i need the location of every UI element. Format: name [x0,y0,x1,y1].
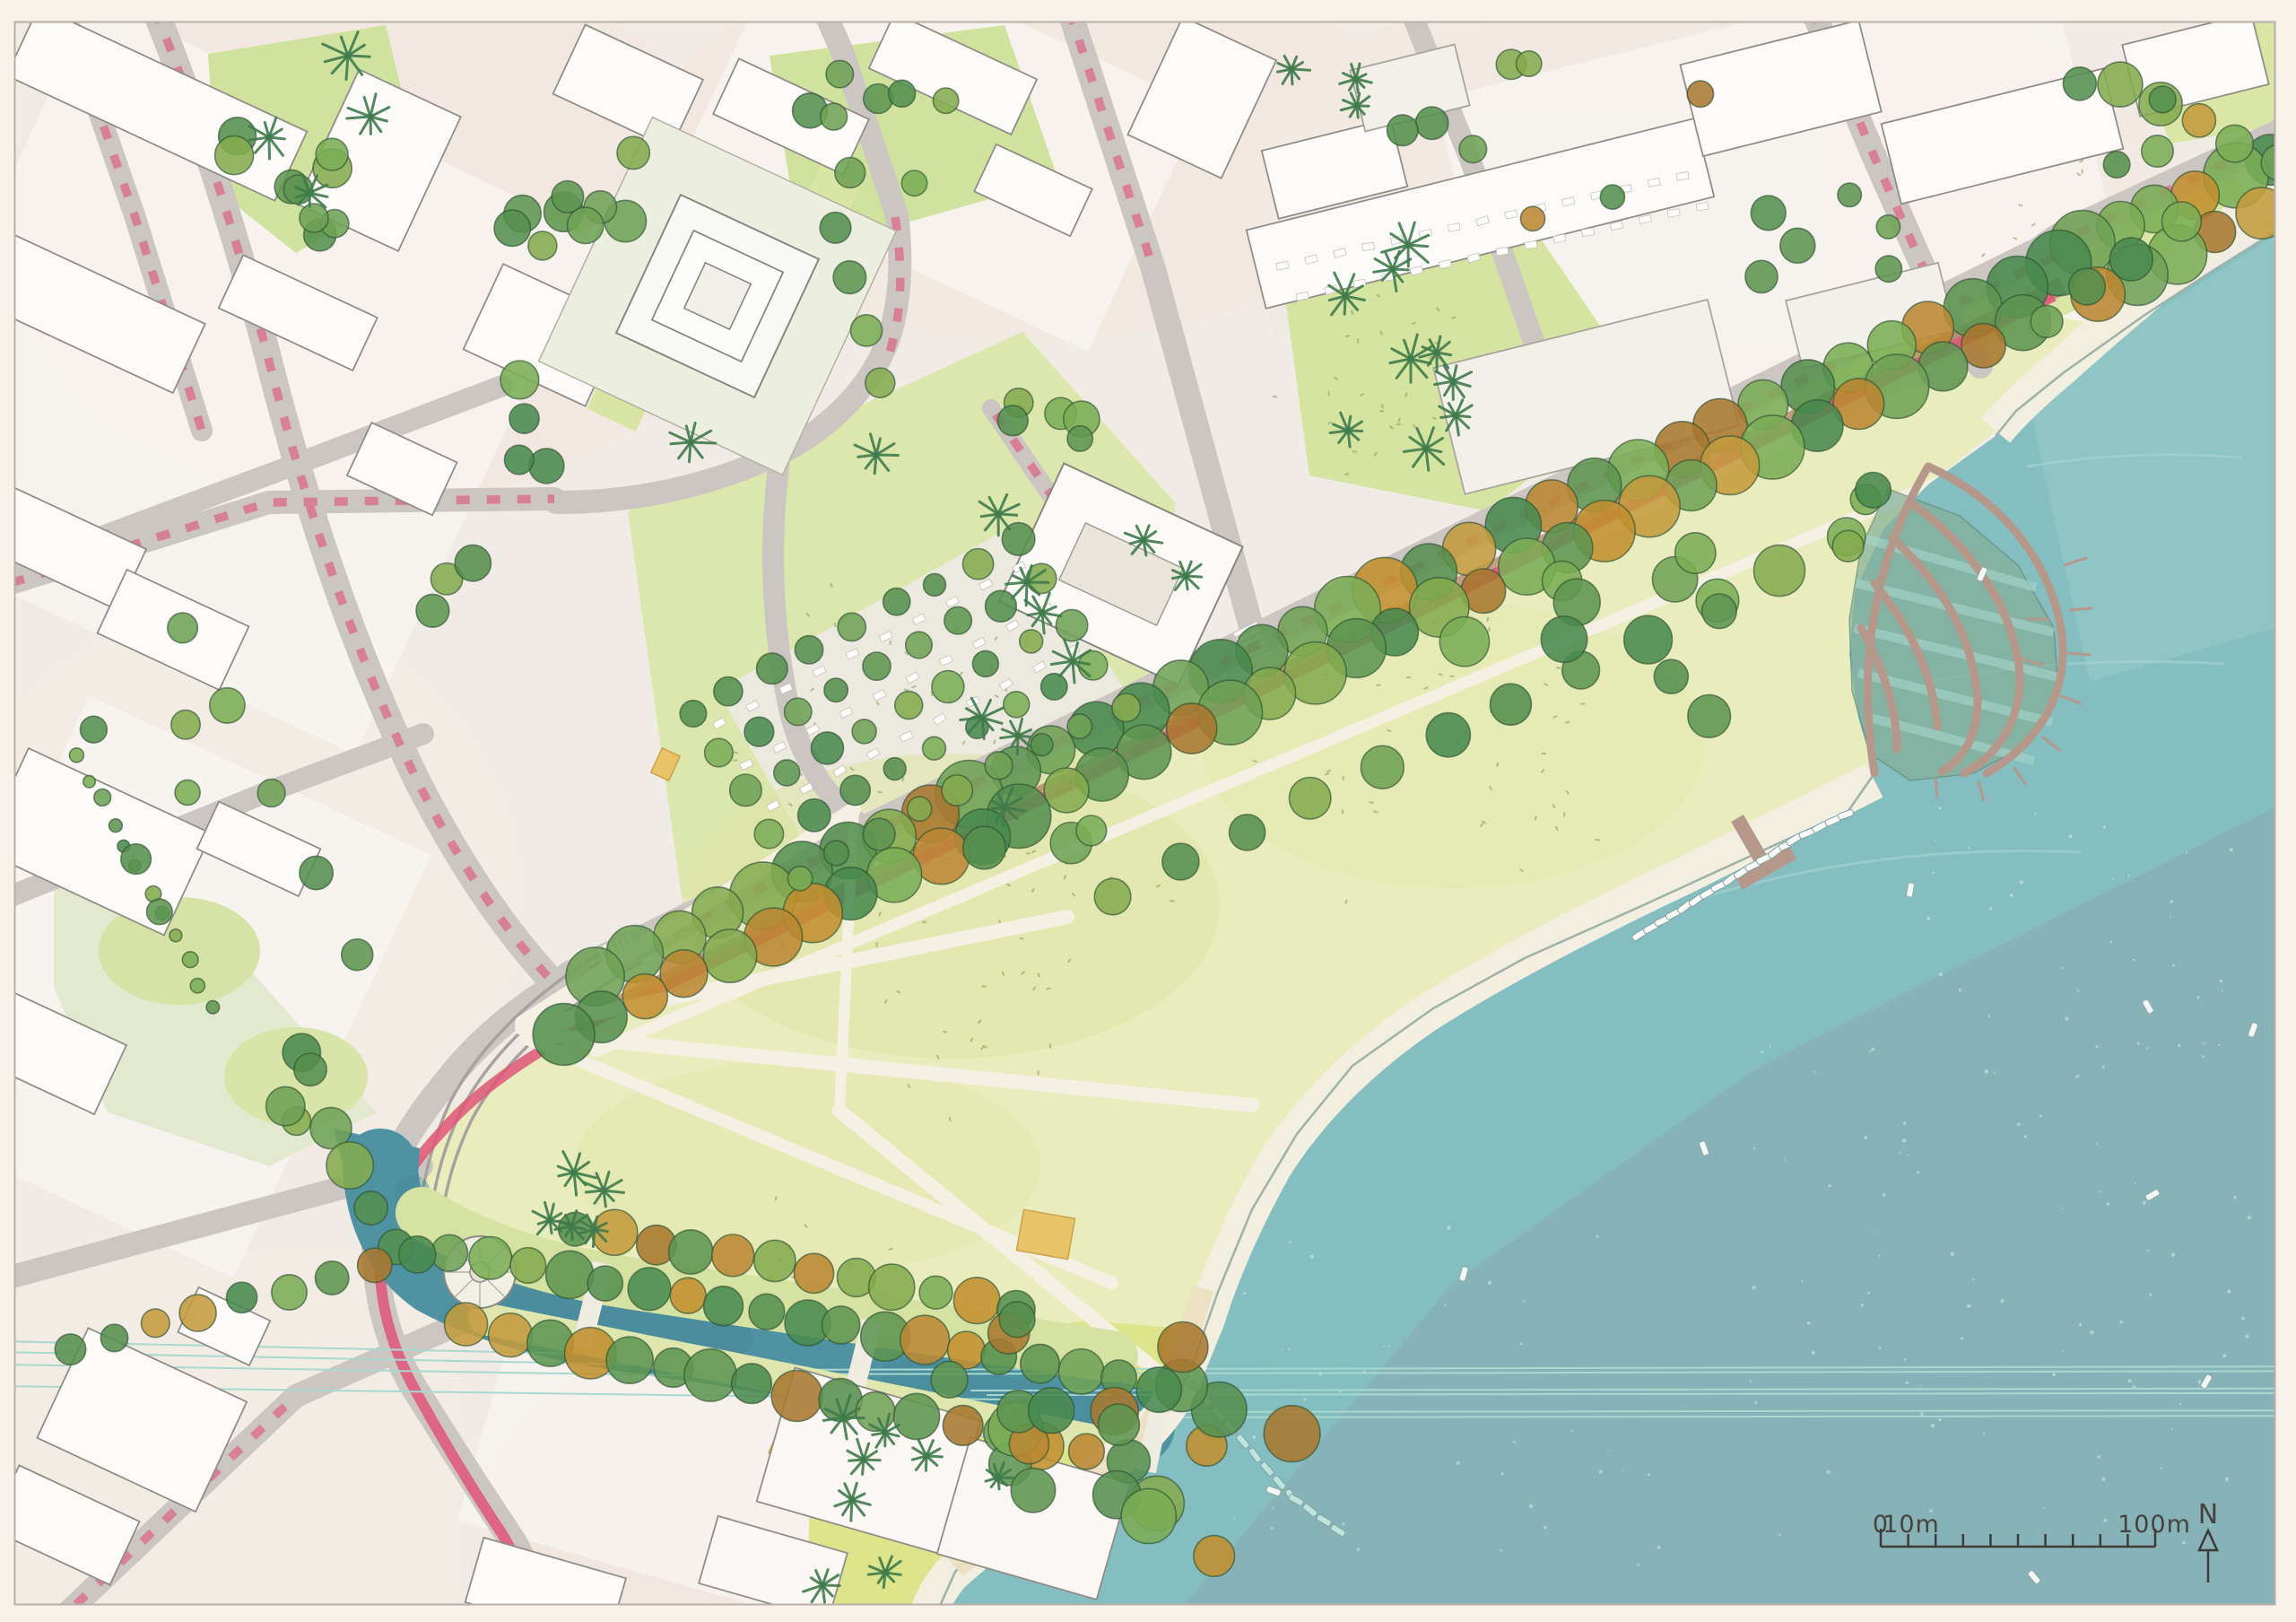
tree [732,1364,772,1404]
water-speckle [1310,1255,1314,1259]
tree [1780,228,1815,263]
water-speckle [1939,972,1943,976]
water-speckle [1972,1278,1974,1280]
water-speckle [1271,1527,1274,1530]
water-speckle [2066,1017,2069,1021]
tree [1290,778,1331,819]
water-speckle [1827,1470,1831,1474]
water-speckle [2128,1379,2132,1382]
water-speckle [1988,1016,1990,1017]
parked-car [1448,223,1460,231]
tree [840,775,870,805]
tree [182,952,198,968]
tree [1162,843,1199,880]
tree [919,1276,952,1309]
water-speckle [1985,1069,1988,1073]
water-speckle [2133,959,2135,962]
tree [705,738,734,767]
meadow-speckle [1037,1071,1039,1076]
parked-car [1362,242,1375,250]
tree [316,1261,349,1295]
water-speckle [1770,1046,1771,1048]
tree [455,545,491,581]
tree [963,826,1006,869]
tree [852,719,876,744]
tree [2109,238,2152,281]
tree [272,1275,307,1310]
tree [684,1349,736,1401]
tree [821,103,848,130]
water-speckle [1457,1461,1460,1465]
tree [2098,62,2143,107]
water-speckle [2001,1299,2005,1303]
water-speckle [2035,813,2037,815]
water-speckle [2062,1350,2064,1352]
water-speckle [1883,1193,1886,1197]
tree [824,841,849,866]
water-speckle [1596,1235,1599,1238]
tree [812,732,844,764]
water-speckle [2241,1317,2245,1321]
water-speckle [2017,1122,2021,1126]
tree [680,701,707,728]
tree [568,207,604,243]
water-speckle [1802,1280,1804,1282]
parked-car [1496,247,1509,256]
tree [171,711,200,739]
tree [1754,545,1805,597]
water-speckle [1513,1441,1516,1443]
tree [730,774,762,807]
tree [469,1237,512,1280]
tree [1838,183,1861,206]
tree [1067,426,1092,451]
tree [69,748,83,763]
water-speckle [2103,1519,2107,1522]
tree [100,1324,127,1351]
tree [1687,81,1713,107]
tree [1688,695,1731,738]
tree [1624,615,1673,664]
tree [985,752,1013,780]
tree [932,671,964,703]
meadow-speckle [1049,1043,1051,1048]
tree [865,368,895,397]
water-speckle [2101,1478,2105,1481]
tree [1875,256,1901,282]
tree [1067,714,1091,738]
water-speckle [1829,1184,1831,1187]
tree [1230,815,1265,850]
meadow-speckle [1342,809,1344,814]
tree [494,210,530,246]
water-speckle [2010,894,2013,897]
water-speckle [1871,1048,1874,1051]
water-speckle [2202,1055,2205,1058]
water-speckle [1967,1304,1970,1308]
tree [622,974,667,1019]
water-speckle [2149,1294,2152,1296]
tree [850,315,882,346]
water-speckle [2128,875,2130,876]
water-speckle [2102,1066,2105,1068]
meadow-speckle [890,641,891,645]
tree [1136,1367,1181,1412]
tree [2182,104,2215,137]
tree [1011,1469,1055,1513]
tree [923,737,946,760]
tree [1112,693,1141,722]
water-speckle [2106,1202,2109,1206]
tree [2069,268,2106,305]
tree [863,818,895,850]
water-speckle [1520,1342,1523,1345]
water-speckle [1290,1241,1292,1243]
tree [326,1142,373,1189]
tree [2162,202,2202,241]
tree [744,717,774,746]
water-speckle [2147,1250,2149,1251]
tree [822,1306,860,1344]
tree [1121,1488,1176,1543]
water-speckle [2172,964,2175,967]
tree [1056,609,1087,641]
water-speckle [1872,1228,1874,1230]
water-speckle [1637,1564,1639,1566]
water-speckle [2182,1541,2185,1544]
meadow-speckle [1542,753,1546,754]
water-speckle [1867,1292,1870,1295]
tree [1517,51,1542,76]
tree [354,1191,387,1225]
tree [81,716,108,743]
tree [1044,768,1089,813]
water-speckle [1648,1473,1650,1476]
water-speckle [2143,1201,2146,1205]
water-speckle [1243,1292,1246,1295]
water-speckle [1869,1051,1871,1052]
meadow-speckle [1563,812,1565,816]
tree [1600,185,1624,209]
tree [147,899,173,925]
tree [215,136,254,175]
water-speckle [1907,1154,1909,1155]
meadow-speckle [1449,676,1454,677]
tree [1361,746,1404,789]
water-speckle [2098,1455,2100,1458]
tree [942,775,972,806]
tree [999,1302,1035,1338]
tree [833,261,866,294]
tree [798,799,831,832]
water-speckle [2225,1478,2229,1481]
water-speckle [1488,1281,1492,1285]
water-speckle [1879,1347,1882,1349]
tree [824,678,848,702]
tree [109,819,122,833]
water-speckle [1571,1430,1573,1432]
water-speckle [2119,1321,2123,1324]
water-speckle [2171,1428,2173,1430]
water-speckle [1899,1152,1900,1154]
tree [943,1406,983,1446]
water-speckle [2077,990,2079,991]
tree [669,1230,713,1274]
tree [509,404,539,433]
tree [754,1240,796,1281]
tree [358,1248,392,1282]
tree [170,929,182,942]
water-speckle [2170,900,2174,903]
tree [944,606,972,634]
tree [670,1278,706,1313]
tree [1961,324,2005,368]
water-speckle [2222,1354,2226,1357]
water-speckle [1931,1424,1935,1427]
tree [2063,67,2096,100]
water-speckle [2160,1467,2161,1469]
water-speckle [2248,1216,2251,1219]
tree [300,204,328,232]
tree [316,138,348,170]
tree [1745,260,1778,292]
tree [2031,306,2063,338]
water-speckle [1752,1286,1756,1289]
tree [1541,616,1587,662]
tree [972,650,998,676]
meadow-speckle [1376,685,1380,686]
water-speckle [1983,1433,1985,1435]
water-speckle [1523,1300,1525,1302]
tree [997,405,1028,436]
tree [1004,692,1030,718]
water-speckle [1961,1338,1963,1340]
water-speckle [1812,1351,1815,1355]
water-speckle [1357,1548,1360,1551]
meadow-speckle [1406,676,1411,678]
tree [704,1286,744,1326]
tree [908,797,932,821]
water-speckle [2220,980,2222,982]
water-speckle [2135,1182,2136,1184]
water-speckle [1903,1121,1907,1125]
water-speckle [2103,825,2106,828]
tree [266,1086,305,1125]
tree [505,445,535,475]
water-speckle [2230,848,2233,851]
tree [795,636,822,664]
water-speckle [2234,1196,2237,1199]
tree [703,929,756,982]
tree [883,758,906,780]
tree [606,1337,653,1383]
tree [617,136,649,169]
water-speckle [2079,1323,2082,1326]
water-speckle [2090,1330,2093,1334]
tree [533,1004,595,1066]
tree [94,789,111,807]
tree [906,632,933,658]
water-speckle [2096,1045,2099,1048]
water-speckle [2039,1114,2042,1117]
water-speckle [2020,880,2023,884]
water-speckle [2043,1507,2045,1509]
water-speckle [1932,872,1935,875]
tree [1387,115,1419,146]
tree [835,158,865,188]
tree [587,1266,622,1301]
tree [1158,1322,1208,1373]
tree [1490,684,1531,725]
water-speckle [1902,1138,1906,1142]
tree [489,1313,533,1357]
water-speckle [2100,1190,2101,1192]
water-speckle [2146,1047,2148,1049]
water-speckle [1529,1504,1533,1507]
tree [1832,530,1864,562]
tree [300,856,333,889]
water-speckle [1926,917,1930,920]
tree [168,613,198,643]
tree [931,1361,968,1398]
water-speckle [2203,1042,2205,1044]
tree [1020,630,1043,653]
water-speckle [1304,1398,1307,1400]
tree [757,653,788,685]
water-speckle [1233,1518,1235,1520]
tree [864,84,893,114]
tree [1058,1349,1103,1394]
tree [1876,215,1900,239]
water-speckle [1938,1418,1941,1421]
water-speckle [1920,1412,1924,1416]
tree [895,692,923,719]
tree [1439,617,1489,667]
tree [714,677,743,706]
water-speckle [2061,967,2063,969]
tree [510,1248,546,1284]
tree [712,1234,754,1277]
water-speckle [1879,1255,1881,1257]
water-speckle [1342,1522,1344,1525]
water-speckle [1919,1385,1921,1387]
water-speckle [1607,1450,1609,1452]
tree [893,1393,939,1439]
water-speckle [1599,1470,1603,1474]
water-speckle [2222,990,2223,991]
tree [1076,815,1107,846]
water-speckle [2052,1373,2056,1376]
water-speckle [1864,1136,1867,1139]
water-speckle [2110,941,2113,944]
water-speckle [1272,1507,1274,1509]
tree [1031,734,1053,756]
water-speckle [2137,1042,2140,1045]
water-speckle [1544,1526,1547,1530]
tree [788,867,813,891]
tree [901,170,926,196]
meadow-speckle [1026,852,1031,854]
parked-car [1676,172,1689,180]
water-speckle [1447,1225,1450,1229]
tree [924,573,946,596]
tree [953,1278,1000,1324]
water-speckle [1445,1304,1447,1306]
water-speckle [1906,1382,1909,1384]
masterplan-map: 0 10m 100m N [0,0,2296,1622]
water-speckle [2198,1380,2201,1382]
water-speckle [1657,1546,1661,1549]
water-speckle [1935,840,1936,842]
tree [2142,135,2173,167]
tree [820,213,851,244]
water-speckle [1959,989,1961,991]
tree [175,780,200,805]
tree [1098,1404,1139,1445]
tree [206,1000,220,1014]
tree [1459,135,1487,163]
water-speckle [2179,1403,2181,1405]
tree [749,1294,785,1330]
parked-car [1696,203,1709,211]
tree [179,1295,216,1331]
parked-car [1582,228,1595,237]
tree [774,760,800,786]
tree [1264,1406,1320,1462]
water-speckle [1784,1159,1786,1161]
tree [1520,206,1544,231]
water-speckle [1861,1304,1864,1306]
tree [863,652,891,680]
tree [416,594,449,627]
tree [869,1264,915,1310]
water-speckle [1753,1147,1755,1149]
water-speckle [2186,851,2187,853]
tree [210,688,245,723]
tree [1654,659,1688,693]
water-speckle [1501,1472,1504,1475]
water-speckle [1749,1380,1751,1382]
tree [1751,196,1786,231]
tree [771,1371,822,1422]
tree [1426,713,1470,757]
tree [794,1253,833,1293]
water-speckle [2246,1335,2249,1339]
tree [445,1303,488,1346]
water-speckle [1938,807,1941,809]
water-speckle [1950,1252,1953,1256]
tree [227,1282,257,1312]
tree [529,449,564,484]
water-speckle [2069,834,2073,838]
tree [933,88,958,113]
tree [856,1392,895,1432]
tree [121,844,152,875]
tree [1702,594,1737,629]
water-speckle [1383,1346,1385,1347]
water-speckle [2171,1252,2175,1256]
tree [754,819,783,848]
tree [342,939,373,971]
tree [257,780,285,807]
north-label: N [2198,1499,2218,1530]
water-speckle [1989,907,1992,910]
tree [1415,107,1448,139]
tree [2216,125,2254,162]
tree [294,1053,326,1086]
tree [1094,878,1131,915]
meadow-speckle [876,942,878,946]
